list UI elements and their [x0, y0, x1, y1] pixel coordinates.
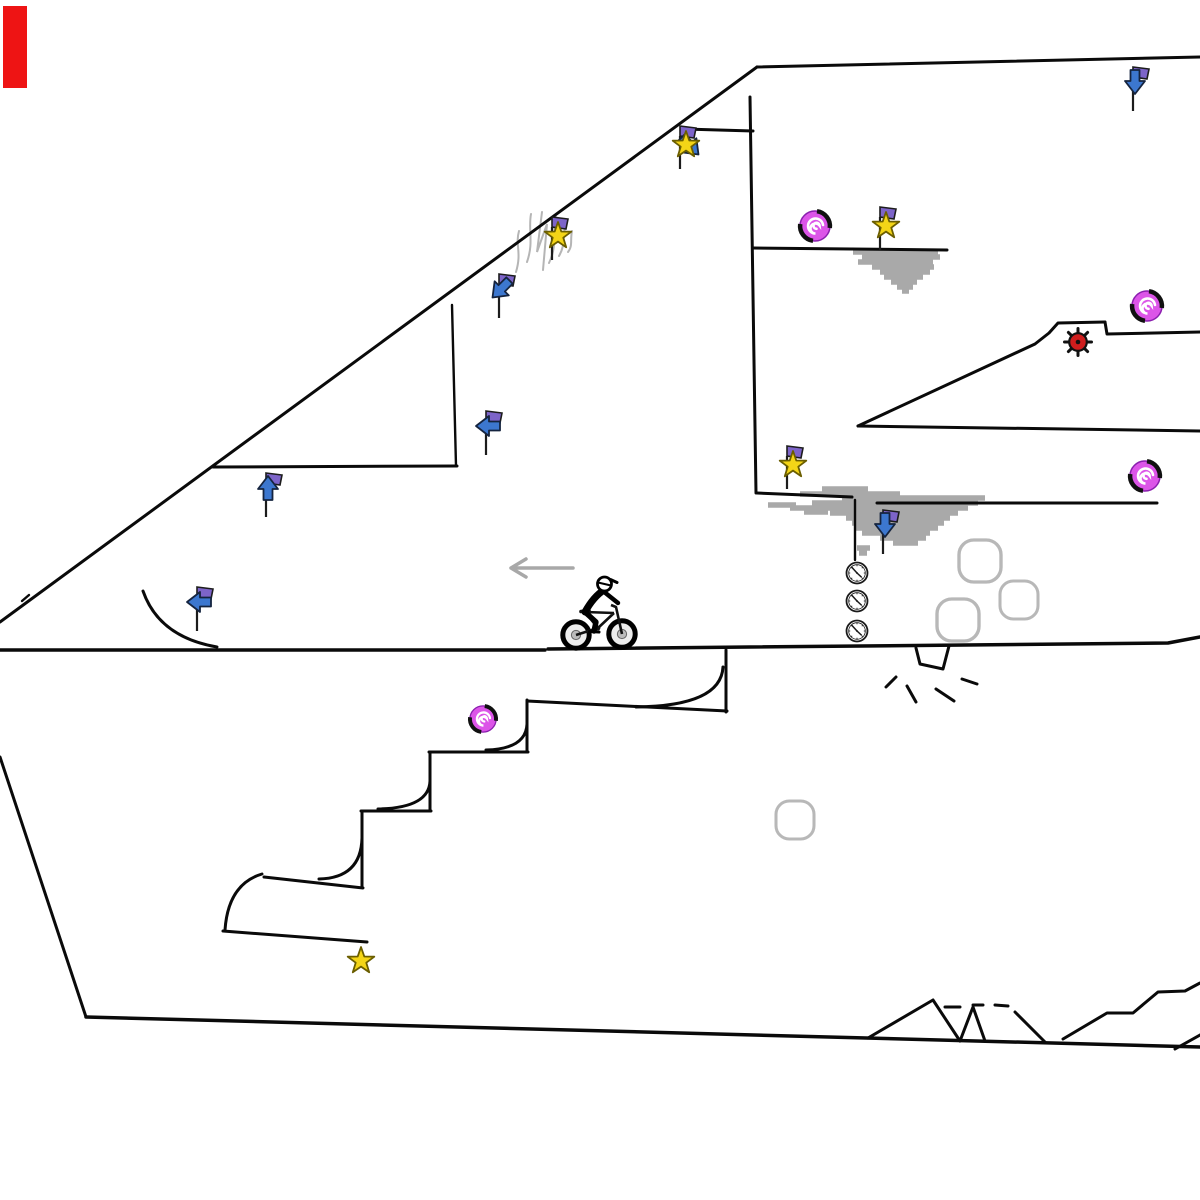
track-line — [1105, 322, 1200, 334]
track-line — [907, 686, 916, 702]
track-curve — [636, 667, 723, 707]
track-line — [1015, 1012, 1045, 1042]
track-line — [213, 466, 457, 467]
game-canvas[interactable] — [0, 0, 1200, 1200]
warp-spiral-icon[interactable] — [470, 706, 496, 732]
track-line — [548, 637, 1200, 649]
bomb-icon[interactable] — [1065, 329, 1092, 356]
checkpoint-flag-icon[interactable] — [1125, 67, 1149, 111]
left-arrow-icon — [511, 559, 573, 577]
track-curve — [319, 838, 362, 879]
track-line — [0, 757, 86, 1017]
track-line — [936, 689, 954, 701]
checkpoint-flag-icon[interactable] — [476, 411, 502, 455]
star-flag-icon[interactable] — [673, 126, 706, 169]
scene-svg[interactable] — [0, 0, 1200, 1200]
scenery-circle — [776, 801, 814, 839]
powerup-layer — [187, 67, 1162, 972]
scenery-circle — [937, 599, 979, 641]
track-line — [960, 1007, 985, 1041]
track-line — [886, 677, 896, 687]
track-line — [962, 679, 977, 684]
checkpoint-flag-icon[interactable] — [187, 587, 213, 631]
track-line — [0, 67, 757, 622]
scenery-circle — [959, 540, 1001, 582]
track-line — [753, 248, 947, 250]
track-line — [1063, 983, 1200, 1039]
checkpoint-flag-icon[interactable] — [485, 273, 516, 318]
scribble-strand — [527, 214, 531, 262]
track-line — [916, 646, 949, 669]
warp-spiral-icon[interactable] — [800, 211, 830, 241]
slow-motion-clock-icon[interactable] — [847, 621, 868, 642]
track-line — [452, 305, 456, 466]
slow-motion-clock-icon[interactable] — [847, 563, 868, 584]
checkpoint-flag-icon[interactable] — [258, 473, 282, 517]
track-curve — [378, 781, 430, 809]
eraser-smudge-layer — [768, 252, 985, 553]
decor-layer — [511, 559, 573, 577]
track-curve — [225, 874, 262, 930]
goal-star-icon[interactable] — [348, 947, 375, 972]
track-line — [995, 1005, 1008, 1006]
star-flag-icon[interactable] — [873, 207, 900, 250]
star-flag-icon[interactable] — [780, 446, 807, 489]
track-line — [750, 97, 756, 493]
slow-motion-clock-icon[interactable] — [847, 591, 868, 612]
track-line — [223, 931, 367, 942]
scribble-strand — [516, 231, 519, 272]
track-line — [757, 57, 1200, 67]
track-line — [858, 322, 1105, 426]
rider-on-bike[interactable] — [563, 577, 635, 648]
warp-spiral-icon[interactable] — [1132, 291, 1162, 321]
scenery-circle — [1000, 581, 1038, 619]
track-lines-layer — [0, 57, 1200, 1049]
track-line — [264, 877, 363, 888]
track-line — [527, 701, 727, 711]
track-line — [858, 426, 1200, 431]
star-flag-icon[interactable] — [545, 217, 572, 260]
warp-spiral-icon[interactable] — [1130, 461, 1160, 491]
